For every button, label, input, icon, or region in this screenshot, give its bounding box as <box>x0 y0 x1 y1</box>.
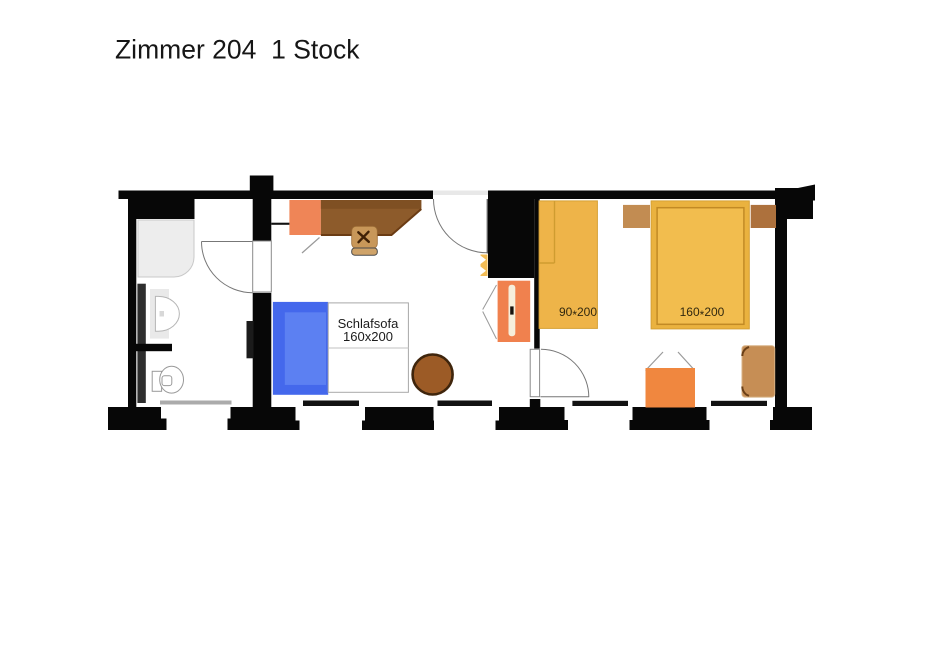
svg-text:160x200: 160x200 <box>343 329 393 344</box>
svg-text:Zimmer 204 1 Stock: Zimmer 204 1 Stock <box>115 35 360 65</box>
